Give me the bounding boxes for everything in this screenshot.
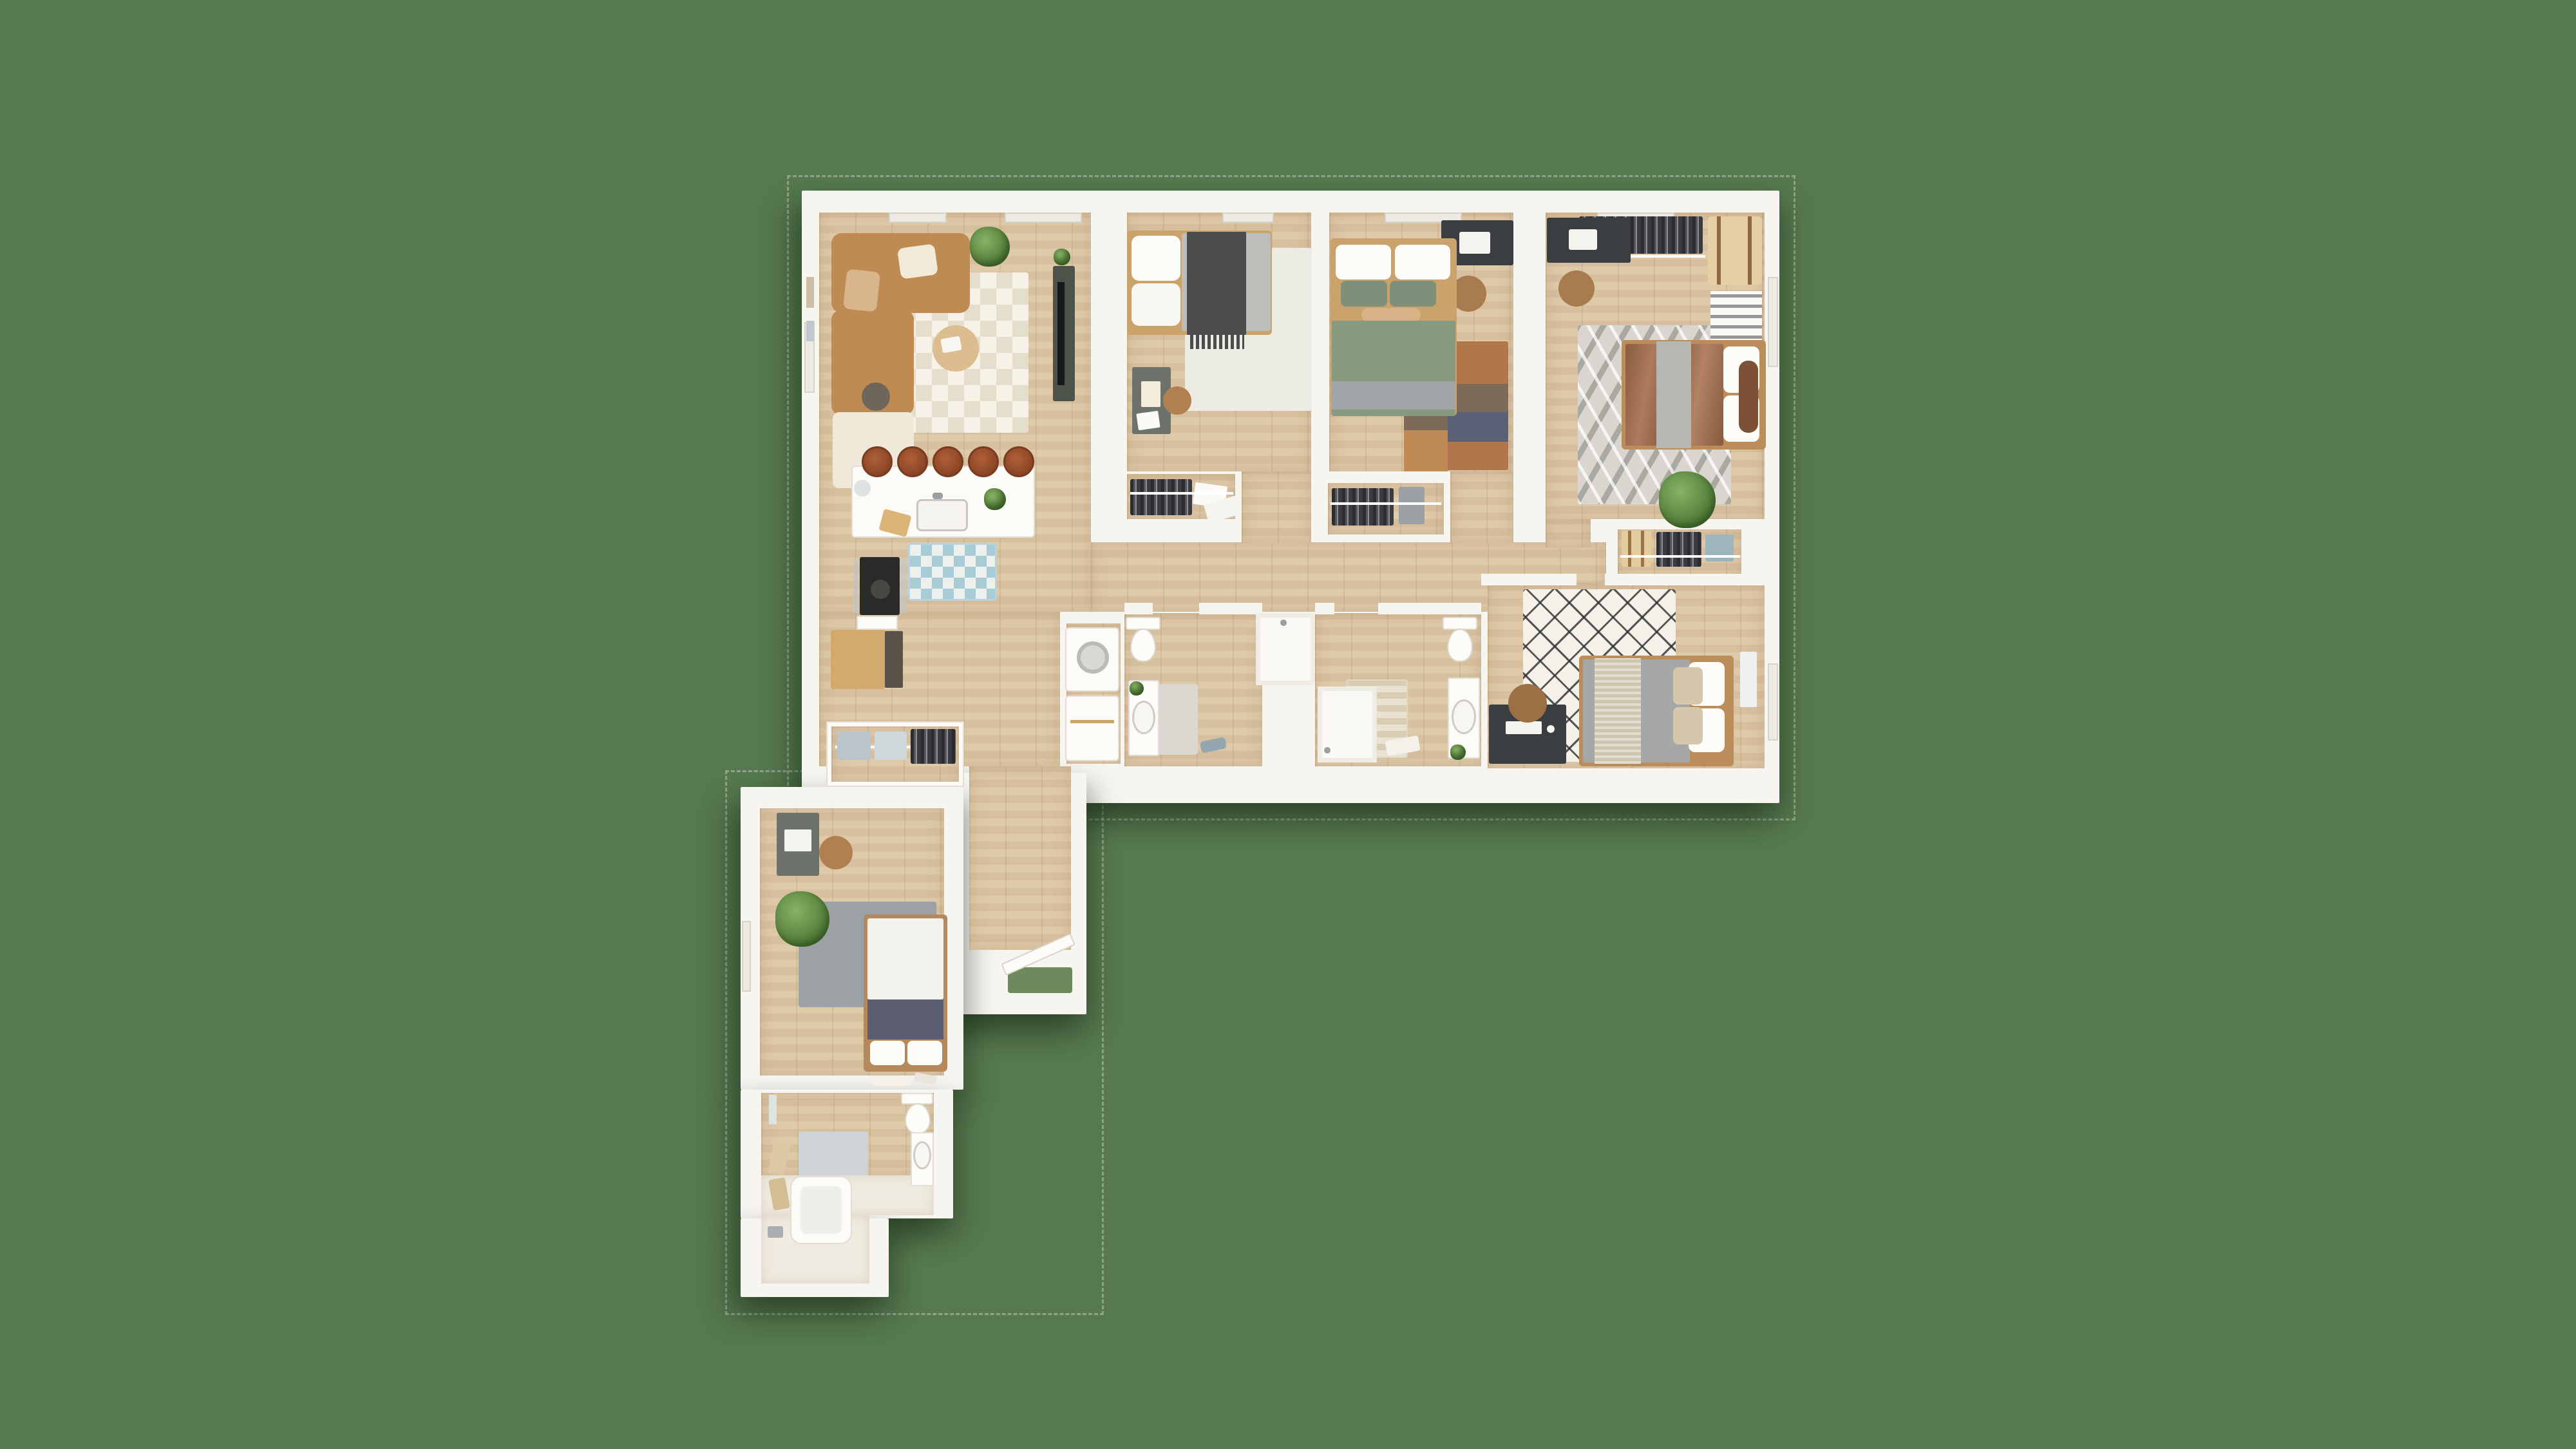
storage-basket [862,383,890,411]
bathroom3-shower-mat [799,1132,868,1175]
living-window-top-a [889,213,947,223]
bedroom3-trunk [1708,216,1762,285]
closet4-clothes [1656,532,1701,567]
bathroom1-shower-head [1280,620,1287,626]
bedroom4-chair [1508,684,1547,723]
bar-stool-3 [933,446,963,477]
closet4-suitcase-strap-a [1628,531,1631,567]
bedroom2-pillow-a [1336,245,1391,279]
dryer [1065,696,1119,761]
bedroom5-blanket [867,999,943,1039]
bathroom2-toilet-bowl [1447,629,1473,662]
wall-art-b [806,321,814,341]
bedroom1-pillow-b [1132,283,1180,326]
bedroom4-top-wall-right [1605,574,1767,585]
closet4-rail [1620,555,1740,558]
page-background: { "canvas": { "width": 4000, "height": 2… [0,0,2576,1449]
bathroom2-toilet-tank [1443,617,1477,630]
bar-stool-1 [862,446,893,477]
floorplan-stage [0,0,2576,1449]
bedroom4-pillow-tan-b [1673,707,1703,744]
bathroom2-top-wall-b [1378,603,1481,614]
bathroom2-plant [1450,744,1466,760]
tv-screen [1057,282,1065,385]
bedroom5-pillow-b [907,1041,942,1065]
closet4-suitcase-strap-b [1641,531,1644,567]
bedroom4-pillow-tan-a [1673,667,1703,705]
bathroom1-top-wall-b [1199,603,1262,614]
dryer-handle [1070,720,1114,723]
living-window-top-b [1005,213,1082,223]
sofa-cushion-a [897,243,938,279]
closet4-suitcase [1622,531,1651,567]
bedroom2-pillow-b [1395,245,1450,279]
bedroom3-trunk-strap-b [1748,216,1752,285]
bedroom5-pillow-a [870,1041,905,1065]
bathroom1-toilet-bowl [1130,629,1156,662]
bedroom5-floor-books [873,1075,911,1086]
laundry-basket-b [875,732,907,760]
bedroom1-desk-tablet [1141,381,1160,407]
bedroom1-window [1222,213,1274,223]
bedroom1-door-floor [1242,471,1311,544]
bedroom4-wall-niche [1740,652,1757,707]
bathroom3-toilet-bowl [905,1103,931,1134]
living-plant [970,227,1010,267]
closet2-clothes [1332,488,1394,526]
bedroom5-window-left [742,921,751,992]
bedroom4-mouse [1547,725,1555,733]
bathroom1-sink [1132,701,1155,734]
entry-doormat [1008,967,1072,993]
bar-stool-4 [968,446,999,477]
bedroom2-pillow-green-a [1341,281,1387,307]
bedroom3-door-floor [1546,519,1591,547]
bedroom2-pillow-green-b [1390,281,1436,307]
bar-stool-2 [897,446,928,477]
bedroom1-throw-fringe [1190,335,1244,349]
bathroom2-top-wall-a [1315,603,1334,614]
console-plant [1054,249,1070,265]
closet1-rail [1130,492,1233,495]
bedroom2-rug-patch-navy [1448,412,1508,442]
bedroom4-top-wall-left [1481,574,1577,585]
bedroom5-chair [819,836,853,869]
bar-stool-5 [1003,446,1034,477]
closet1-clothes [1130,479,1192,515]
range-glass-left [853,559,859,613]
bedroom2-throw [1332,381,1455,410]
bathroom3-tub-inner [800,1186,842,1234]
kitchen-cabinet-front [885,631,903,688]
bedroom4-window-right [1768,663,1778,741]
sofa-cushion-b [843,269,880,312]
bedroom3-bolster [1739,361,1758,433]
range-pan [871,580,890,599]
bathroom1-mat [1158,684,1198,755]
wall-art-a [806,277,814,308]
bedroom3-laptop [1569,229,1597,250]
bedroom4-keyboard [1506,721,1542,734]
kitchen-counter [857,616,898,630]
laundry-basket-a [837,732,871,760]
bedroom3-runner [1656,341,1691,448]
bedroom3-plant [1659,471,1716,528]
bathroom1-plant [1130,681,1144,696]
bedroom5-laptop [784,829,811,851]
bedroom3-chair [1558,270,1595,307]
bathroom1-toilet-tank [1126,617,1160,630]
laundry-hanging-clothes [911,729,956,764]
kitchen-rug [908,543,997,601]
bedroom1-chair [1163,386,1191,415]
bedroom2-laptop [1459,232,1490,254]
range-glass-right [900,559,906,613]
bedroom5-duvet [867,918,943,999]
kitchen-faucet [933,493,943,499]
plate-stack [854,480,871,497]
closet2-towel-stack [1399,487,1425,524]
bedroom5-plant [775,891,829,947]
washer-drum [1077,641,1109,674]
bedroom3-trunk-strap-a [1717,216,1721,285]
bedroom2-door-floor [1450,471,1513,544]
bedroom2-bolster [1361,308,1421,322]
kitchen-sink [916,499,968,531]
corridor-floor [969,766,1071,950]
kitchen-cabinet-wood [831,630,885,689]
bathroom2-shower-head [1324,747,1331,753]
bedroom2-rug-patch-orange [1404,430,1448,471]
bathroom3-wall-art [769,1095,777,1124]
bathroom1-top-wall-a [1124,603,1153,614]
bedroom1-throw [1187,232,1246,335]
bedroom4-throw [1595,658,1641,764]
bedroom1-desk-book [1136,411,1160,430]
island-plant [984,488,1006,510]
bathroom3-faucet [768,1226,783,1238]
bathroom3-sink [913,1141,931,1170]
closet2-rail [1331,502,1441,505]
bathroom2-sink [1452,699,1476,734]
bedroom3-window-right [1768,277,1778,367]
bedroom1-pillow-a [1132,236,1180,281]
